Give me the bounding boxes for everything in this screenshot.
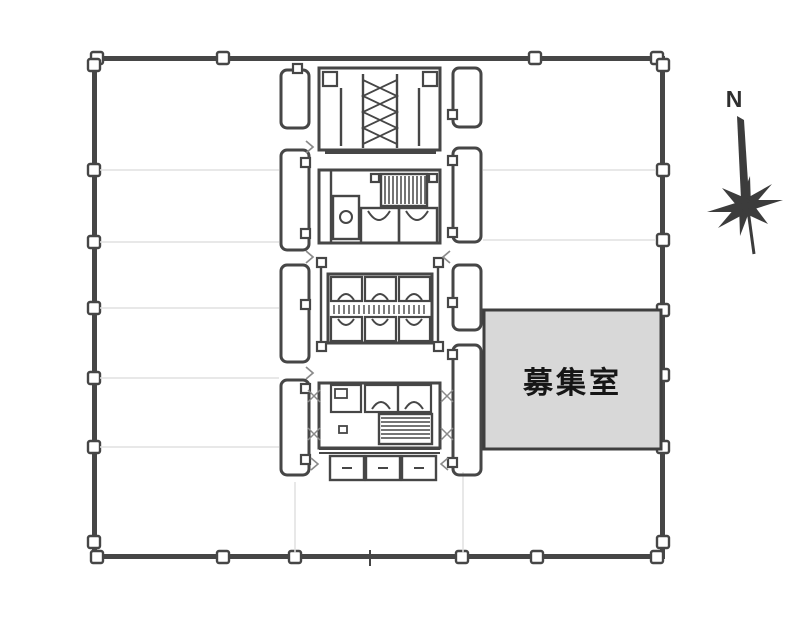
compass-north-label: N bbox=[714, 86, 754, 113]
corridor-hatch bbox=[334, 305, 424, 314]
lower-core-block bbox=[308, 383, 453, 448]
escalator-icon bbox=[381, 174, 427, 206]
restroom-block bbox=[319, 170, 440, 243]
floor-plan-figure bbox=[0, 0, 787, 617]
compass-rose-icon bbox=[707, 116, 783, 254]
service-shafts-right bbox=[448, 68, 481, 475]
staircase-icon bbox=[363, 80, 397, 144]
stairwell-block bbox=[319, 68, 440, 152]
service-shafts-left bbox=[281, 64, 310, 475]
vacant-room-label: 募集室 bbox=[484, 310, 661, 449]
elevator-bank bbox=[317, 258, 443, 351]
bottom-service-band bbox=[311, 449, 448, 480]
floor-plan-page: 募集室 N bbox=[0, 0, 787, 617]
stair-stripes-icon bbox=[379, 414, 432, 444]
elevator-car-icon bbox=[331, 277, 430, 341]
